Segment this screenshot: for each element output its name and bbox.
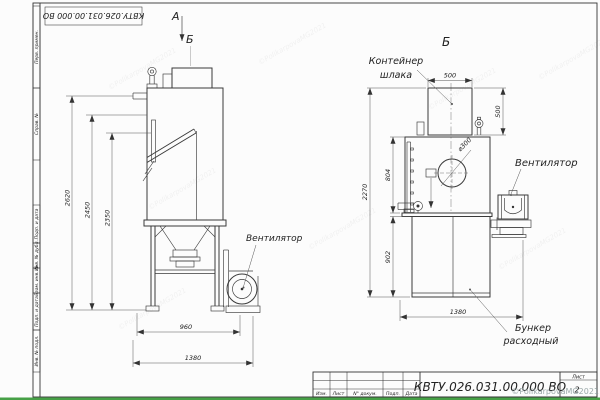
tb-col-list: Лист (332, 391, 345, 397)
top-doc-stamp: КВТУ.026.031.00.000 ВО (43, 7, 144, 25)
tb-col-podp: Подп. (386, 391, 400, 397)
fan-b-label: Вентилятор (515, 158, 578, 169)
view-label-a: А (171, 10, 180, 23)
dim-804: 804 (384, 169, 392, 181)
dim-960: 960 (180, 323, 192, 331)
svg-text:©PolikarpovaMG2021: ©PolikarpovaMG2021 (537, 36, 600, 81)
fan-side-view (224, 250, 261, 313)
tb-col-docnum: N° докум. (353, 391, 377, 397)
view-b-dimensions: 500 500 804 902 2270 1380 (361, 72, 523, 322)
bunker-label-line2: расходный (503, 336, 559, 347)
dim-2270: 2270 (361, 184, 369, 201)
view-label-b-arrow: Б (186, 33, 194, 46)
dim-2450: 2450 (84, 202, 92, 219)
dim-1380-b: 1380 (450, 308, 467, 316)
engineering-drawing: Перв. примен. Справ. № Подп. и дата Инв.… (0, 0, 600, 400)
drawing-sheet: Перв. примен. Справ. № Подп. и дата Инв.… (0, 0, 600, 400)
copyright-watermark: ©PolikarpovaMG2021 (511, 387, 599, 396)
sidebar-stamp: Перв. примен. Справ. № Подп. и дата Инв.… (33, 6, 40, 372)
dim-2350: 2350 (104, 210, 112, 227)
slag-container-label-line1: Контейнер (369, 56, 423, 67)
top-doc-number: КВТУ.026.031.00.000 ВО (43, 11, 144, 20)
svg-text:©PolikarpovaMG2021: ©PolikarpovaMG2021 (497, 226, 568, 271)
dim-500-w: 500 (444, 72, 456, 80)
dust-collector-front-view (398, 137, 492, 297)
sidebar-label: Взам. инв. № (34, 265, 40, 296)
dim-902: 902 (384, 251, 392, 263)
main-view-dimensions: 2620 2450 2350 960 1380 (64, 96, 254, 367)
svg-text:©PolikarpovaMG2021: ©PolikarpovaMG2021 (257, 21, 328, 66)
view-b-title: Б (442, 35, 450, 49)
svg-text:©PolikarpovaMG2021: ©PolikarpovaMG2021 (307, 206, 378, 251)
svg-text:©PolikarpovaMG2021: ©PolikarpovaMG2021 (107, 46, 178, 91)
sidebar-label: Перв. примен. (34, 30, 40, 64)
svg-text:©PolikarpovaMG2021: ©PolikarpovaMG2021 (147, 166, 218, 211)
tb-sheet-label: Лист (571, 375, 586, 381)
dim-1380: 1380 (185, 354, 202, 362)
tb-col-izm: Изм. (316, 391, 327, 397)
sidebar-label: Инв. № подл. (34, 335, 40, 366)
sidebar-label: Подп. и дата (34, 296, 40, 327)
slag-container-label-line2: шлака (380, 70, 412, 81)
fan-label: Вентилятор (246, 234, 303, 244)
sidebar-label: Справ. № (34, 113, 40, 135)
dim-500-h: 500 (494, 105, 502, 117)
dim-2620: 2620 (64, 190, 72, 207)
fan-callout: Вентилятор (243, 234, 303, 289)
bunker-label-line1: Бункер (515, 323, 551, 334)
fan-b-callout: Вентилятор (510, 158, 578, 196)
fan-front-view (491, 191, 531, 238)
sidebar-label: Подп. и дата (34, 208, 40, 239)
svg-text:©PolikarpovaMG2021: ©PolikarpovaMG2021 (117, 286, 188, 331)
svg-text:©PolikarpovaMG2021: ©PolikarpovaMG2021 (427, 66, 498, 111)
